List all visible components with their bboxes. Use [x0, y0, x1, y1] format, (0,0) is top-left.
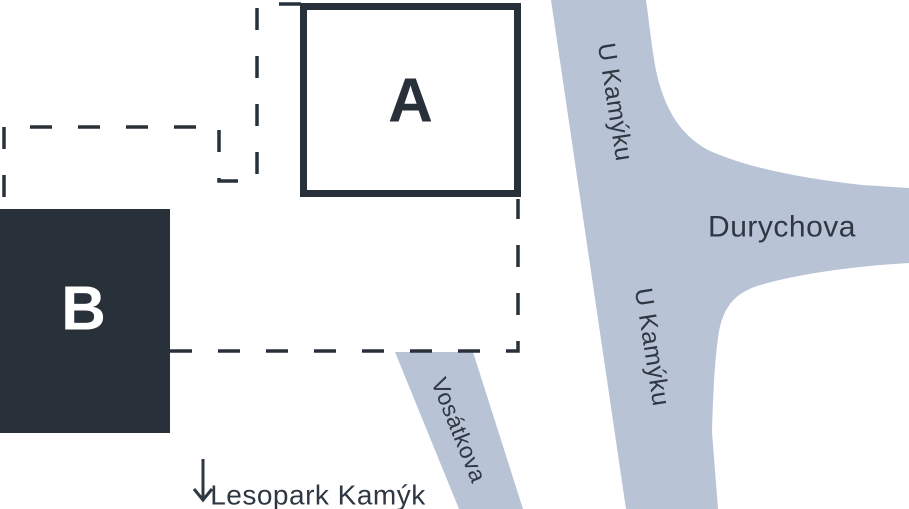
street-label-durychova: Durychova: [708, 211, 856, 244]
parcel-boundary-dashed-left: [4, 4, 301, 209]
parcel-boundary-dashed-right: [170, 199, 518, 351]
lesopark-label: Lesopark Kamýk: [210, 480, 426, 509]
building-a-label: A: [388, 67, 434, 136]
street-map: A B U Kamýku U Kamýku Durychova Vosátkov…: [0, 0, 909, 509]
building-b-label: B: [61, 275, 107, 344]
